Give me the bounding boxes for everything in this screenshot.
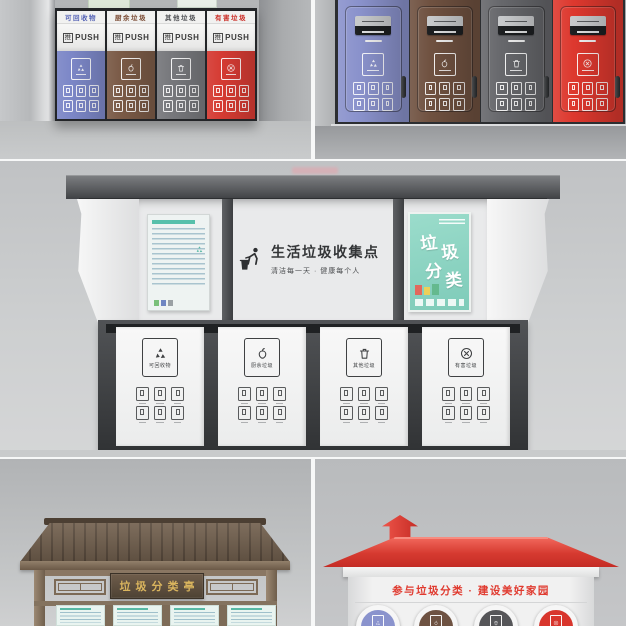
item-icon-cell xyxy=(238,387,251,401)
station-bin-food-waste: 厨余垃圾 xyxy=(218,327,306,446)
item-icon-cell xyxy=(375,387,388,401)
item-icon-cell xyxy=(76,100,86,112)
push-label: PUSH xyxy=(75,33,99,42)
station-pillar-right xyxy=(487,199,549,323)
item-icon-cell xyxy=(163,85,173,97)
item-icon-cell xyxy=(511,82,522,95)
item-icon-cell xyxy=(89,100,99,112)
food-waste-icon xyxy=(121,58,141,80)
item-icon-cell xyxy=(340,406,353,420)
item-icon-cell xyxy=(136,406,149,420)
item-icon-cell xyxy=(189,85,199,97)
push-label: PUSH xyxy=(125,33,149,42)
bin-label: 其他垃圾 xyxy=(353,362,375,369)
item-icon-cell xyxy=(460,387,473,401)
item-icon-cell xyxy=(171,387,184,401)
bin-compartment-hazardous: 有害垃圾 推 PUSH xyxy=(207,11,255,119)
other-waste-icon xyxy=(171,58,191,80)
poster-mullion xyxy=(162,605,170,626)
wall-mullion xyxy=(393,199,404,323)
item-icon-cell xyxy=(154,387,167,401)
recycling-cabinet xyxy=(335,0,625,125)
sorting-item-icons xyxy=(353,82,393,111)
sorting-poster: 垃 圾 分 类 xyxy=(408,212,471,312)
station-subtitle: 清洁每一天 · 健康每个人 xyxy=(271,266,380,276)
lattice-panel-right xyxy=(206,579,258,595)
item-icon-cell xyxy=(442,387,455,401)
item-icon-cell xyxy=(353,98,364,111)
item-icon-cell xyxy=(582,82,593,95)
item-icon-cell xyxy=(163,100,173,112)
gray-bin-swatch xyxy=(168,300,173,306)
door-vent xyxy=(436,40,453,42)
panel-collection-station: 垃 圾 分 类 生活垃圾收集点 清洁每一天 · 健康每个人 可回收物 xyxy=(0,161,626,457)
poster-char: 垃 xyxy=(419,228,439,255)
door-nameplate xyxy=(570,16,606,35)
item-icon-cell xyxy=(126,85,136,97)
item-icon-cell xyxy=(63,85,73,97)
door-vent xyxy=(579,40,596,42)
item-icon-cell xyxy=(496,82,507,95)
green-bin-swatch xyxy=(154,300,159,306)
item-icon-cell xyxy=(139,85,149,97)
bin-label: 有害垃圾 xyxy=(455,362,477,369)
push-flap: 推 PUSH xyxy=(57,23,105,51)
sorting-item-icons xyxy=(63,85,99,112)
station-title: 生活垃圾收集点 xyxy=(271,242,380,262)
station-bin-hazardous: 有害垃圾 xyxy=(422,327,510,446)
cabinet-door xyxy=(345,6,402,112)
bin-compartment-food-waste: 厨余垃圾 推 PUSH xyxy=(107,11,155,119)
plaque-text: 垃圾分类亭 xyxy=(115,578,200,594)
watermark xyxy=(292,167,338,174)
item-icon-cell xyxy=(226,85,236,97)
info-poster xyxy=(170,605,219,626)
item-icon-cell xyxy=(273,406,286,420)
item-icon-cell xyxy=(596,98,607,111)
category-label: 其他垃圾 xyxy=(157,11,205,23)
station-base xyxy=(0,450,626,457)
poster-text-lines xyxy=(415,299,464,306)
tiled-roof xyxy=(20,523,290,562)
item-icon-cell xyxy=(596,82,607,95)
sorting-item-icons xyxy=(425,82,465,111)
station-pillar-left xyxy=(77,199,139,323)
item-icon-cell xyxy=(239,85,249,97)
cabinet-column-recyclable xyxy=(338,0,409,122)
panel-seam xyxy=(355,602,587,603)
item-icon-cell xyxy=(568,82,579,95)
item-icon-cell xyxy=(439,98,450,111)
item-icon-cell xyxy=(582,98,593,111)
door-nameplate xyxy=(355,16,391,35)
door-nameplate xyxy=(498,16,534,35)
bin-door xyxy=(157,51,205,119)
item-icon-cell xyxy=(213,100,223,112)
item-icon-cell xyxy=(136,387,149,401)
pavilion-name-plaque: 垃圾分类亭 xyxy=(110,573,204,599)
cabinet-column-other-waste xyxy=(481,0,552,122)
item-icon-cell xyxy=(353,82,364,95)
item-icon-cell xyxy=(382,98,393,111)
recycle-icon xyxy=(195,241,204,259)
station-slogan: 参与垃圾分类 · 建设美好家园 xyxy=(348,583,594,598)
item-icon-cell xyxy=(439,82,450,95)
bin-label: 厨余垃圾 xyxy=(251,362,273,369)
item-icon-cell xyxy=(525,82,536,95)
item-icon-cell xyxy=(126,100,136,112)
info-poster xyxy=(56,605,105,626)
push-flap: 推 PUSH xyxy=(157,23,205,51)
push-flap: 推 PUSH xyxy=(107,23,155,51)
red-roof xyxy=(323,537,619,567)
category-label: 厨余垃圾 xyxy=(107,11,155,23)
roof-cornice xyxy=(343,567,599,577)
recycle-icon xyxy=(71,58,91,80)
door-handle xyxy=(472,76,477,98)
sorting-item-icons xyxy=(496,82,536,111)
floor xyxy=(0,121,311,159)
cabinet-door xyxy=(417,6,474,112)
cabinet-door xyxy=(560,6,617,112)
blue-bin-swatch xyxy=(161,300,166,306)
floor xyxy=(315,126,626,159)
recycling-unit-front: 可回收物 推 PUSH 厨余垃圾 推 PUSH xyxy=(55,8,257,121)
item-icon-cell xyxy=(154,406,167,420)
pavilion-post-left xyxy=(34,570,45,626)
recycle-icon: 可回收物 xyxy=(142,338,178,377)
wall-sign xyxy=(177,0,217,8)
door-nameplate xyxy=(427,16,463,35)
item-icon-cell xyxy=(273,387,286,401)
recycle-icon xyxy=(362,53,384,76)
info-poster xyxy=(227,605,276,626)
lattice-panel-left xyxy=(54,579,106,595)
wall-mullion xyxy=(222,199,233,323)
item-icon-cell xyxy=(477,387,490,401)
roof-eave xyxy=(20,561,290,570)
item-icon-cell xyxy=(477,406,490,420)
item-icon-cell xyxy=(226,100,236,112)
poster-mullion xyxy=(105,605,113,626)
category-label: 可回收物 xyxy=(57,11,105,23)
render-collage: 可回收物 推 PUSH 厨余垃圾 推 PUSH xyxy=(0,0,626,626)
sorting-item-icons xyxy=(568,82,608,111)
item-icon-cell xyxy=(340,387,353,401)
other-waste-icon: 其他垃圾 xyxy=(346,338,382,377)
door-handle xyxy=(544,76,549,98)
category-label: 有害垃圾 xyxy=(207,11,255,23)
food-waste-icon xyxy=(434,53,456,76)
item-icon-cell xyxy=(511,98,522,111)
panel-wooden-pavilion: 垃圾分类亭 xyxy=(0,459,311,626)
info-poster xyxy=(113,605,162,626)
item-icon-cell xyxy=(525,98,536,111)
poster-text-lines xyxy=(439,219,465,226)
push-char: 推 xyxy=(213,33,224,43)
item-icon-cell xyxy=(238,406,251,420)
item-icon-cell xyxy=(460,406,473,420)
poster-char: 类 xyxy=(444,265,464,292)
bin-door xyxy=(107,51,155,119)
food-waste-icon: 厨余垃圾 xyxy=(244,338,280,377)
item-icon-cell xyxy=(442,406,455,420)
cabinet-column-hazardous xyxy=(553,0,624,122)
item-icon-cell xyxy=(368,82,379,95)
station-canopy xyxy=(66,175,560,199)
panel-cabinet-closeup xyxy=(315,0,626,159)
sorting-item-icons xyxy=(136,387,184,420)
hazardous-icon xyxy=(221,58,241,80)
other-waste-icon xyxy=(505,53,527,76)
recycle-icon xyxy=(372,615,384,626)
sorting-item-icons xyxy=(340,387,388,420)
poster-bin-illustration xyxy=(415,284,439,295)
push-char: 推 xyxy=(113,33,124,43)
poster-char: 圾 xyxy=(440,237,460,264)
bin-label: 可回收物 xyxy=(149,362,171,369)
door-handle xyxy=(615,76,620,98)
item-icon-cell xyxy=(239,100,249,112)
station-title-block: 生活垃圾收集点 清洁每一天 · 健康每个人 xyxy=(238,242,388,276)
item-icon-cell xyxy=(76,85,86,97)
item-icon-cell xyxy=(382,82,393,95)
item-icon-cell xyxy=(568,98,579,111)
sorting-item-icons xyxy=(163,85,199,112)
food-waste-icon xyxy=(430,615,442,626)
push-label: PUSH xyxy=(225,33,249,42)
station-bin-other-waste: 其他垃圾 xyxy=(320,327,408,446)
item-icon-cell xyxy=(453,82,464,95)
cabinet-door xyxy=(488,6,545,112)
item-icon-cell xyxy=(368,98,379,111)
item-icon-cell xyxy=(189,100,199,112)
panel-red-roof-station: 参与垃圾分类 · 建设美好家园 xyxy=(315,459,626,626)
cabinet-column-food-waste xyxy=(410,0,481,122)
item-icon-cell xyxy=(176,85,186,97)
push-label: PUSH xyxy=(175,33,199,42)
sorting-item-icons xyxy=(213,85,249,112)
hazardous-icon: 有害垃圾 xyxy=(448,338,484,377)
item-icon-cell xyxy=(425,98,436,111)
door-handle xyxy=(401,76,406,98)
push-flap: 推 PUSH xyxy=(207,23,255,51)
item-icon-cell xyxy=(358,387,371,401)
door-vent xyxy=(365,40,382,42)
poster-mullion xyxy=(219,605,227,626)
bin-compartment-other-waste: 其他垃圾 推 PUSH xyxy=(157,11,205,119)
item-icon-cell xyxy=(176,100,186,112)
poster-title-bar xyxy=(152,220,195,224)
item-icon-cell xyxy=(89,85,99,97)
sorting-item-icons xyxy=(442,387,490,420)
other-waste-icon xyxy=(490,615,502,626)
bin-compartment-recyclable: 可回收物 推 PUSH xyxy=(57,11,105,119)
poster-char: 分 xyxy=(424,256,444,283)
item-icon-cell xyxy=(213,85,223,97)
info-poster xyxy=(147,214,210,311)
station-bin-recyclable: 可回收物 xyxy=(116,327,204,446)
push-char: 推 xyxy=(163,33,174,43)
litter-person-icon xyxy=(238,244,264,274)
item-icon-cell xyxy=(453,98,464,111)
item-icon-cell xyxy=(358,406,371,420)
bin-door xyxy=(57,51,105,119)
bin-door xyxy=(207,51,255,119)
push-char: 推 xyxy=(63,33,74,43)
item-icon-cell xyxy=(375,406,388,420)
item-icon-cell xyxy=(171,406,184,420)
item-icon-cell xyxy=(139,100,149,112)
item-icon-cell xyxy=(256,406,269,420)
item-icon-cell xyxy=(113,85,123,97)
poster-footer-bins xyxy=(154,300,173,306)
sorting-item-icons xyxy=(113,85,149,112)
item-icon-cell xyxy=(425,82,436,95)
hazardous-icon xyxy=(550,615,562,626)
hazardous-icon xyxy=(577,53,599,76)
item-icon-cell xyxy=(496,98,507,111)
item-icon-cell xyxy=(113,100,123,112)
item-icon-cell xyxy=(63,100,73,112)
item-icon-cell xyxy=(256,387,269,401)
panel-push-flap-unit: 可回收物 推 PUSH 厨余垃圾 推 PUSH xyxy=(0,0,311,159)
sorting-item-icons xyxy=(238,387,286,420)
door-vent xyxy=(508,40,525,42)
